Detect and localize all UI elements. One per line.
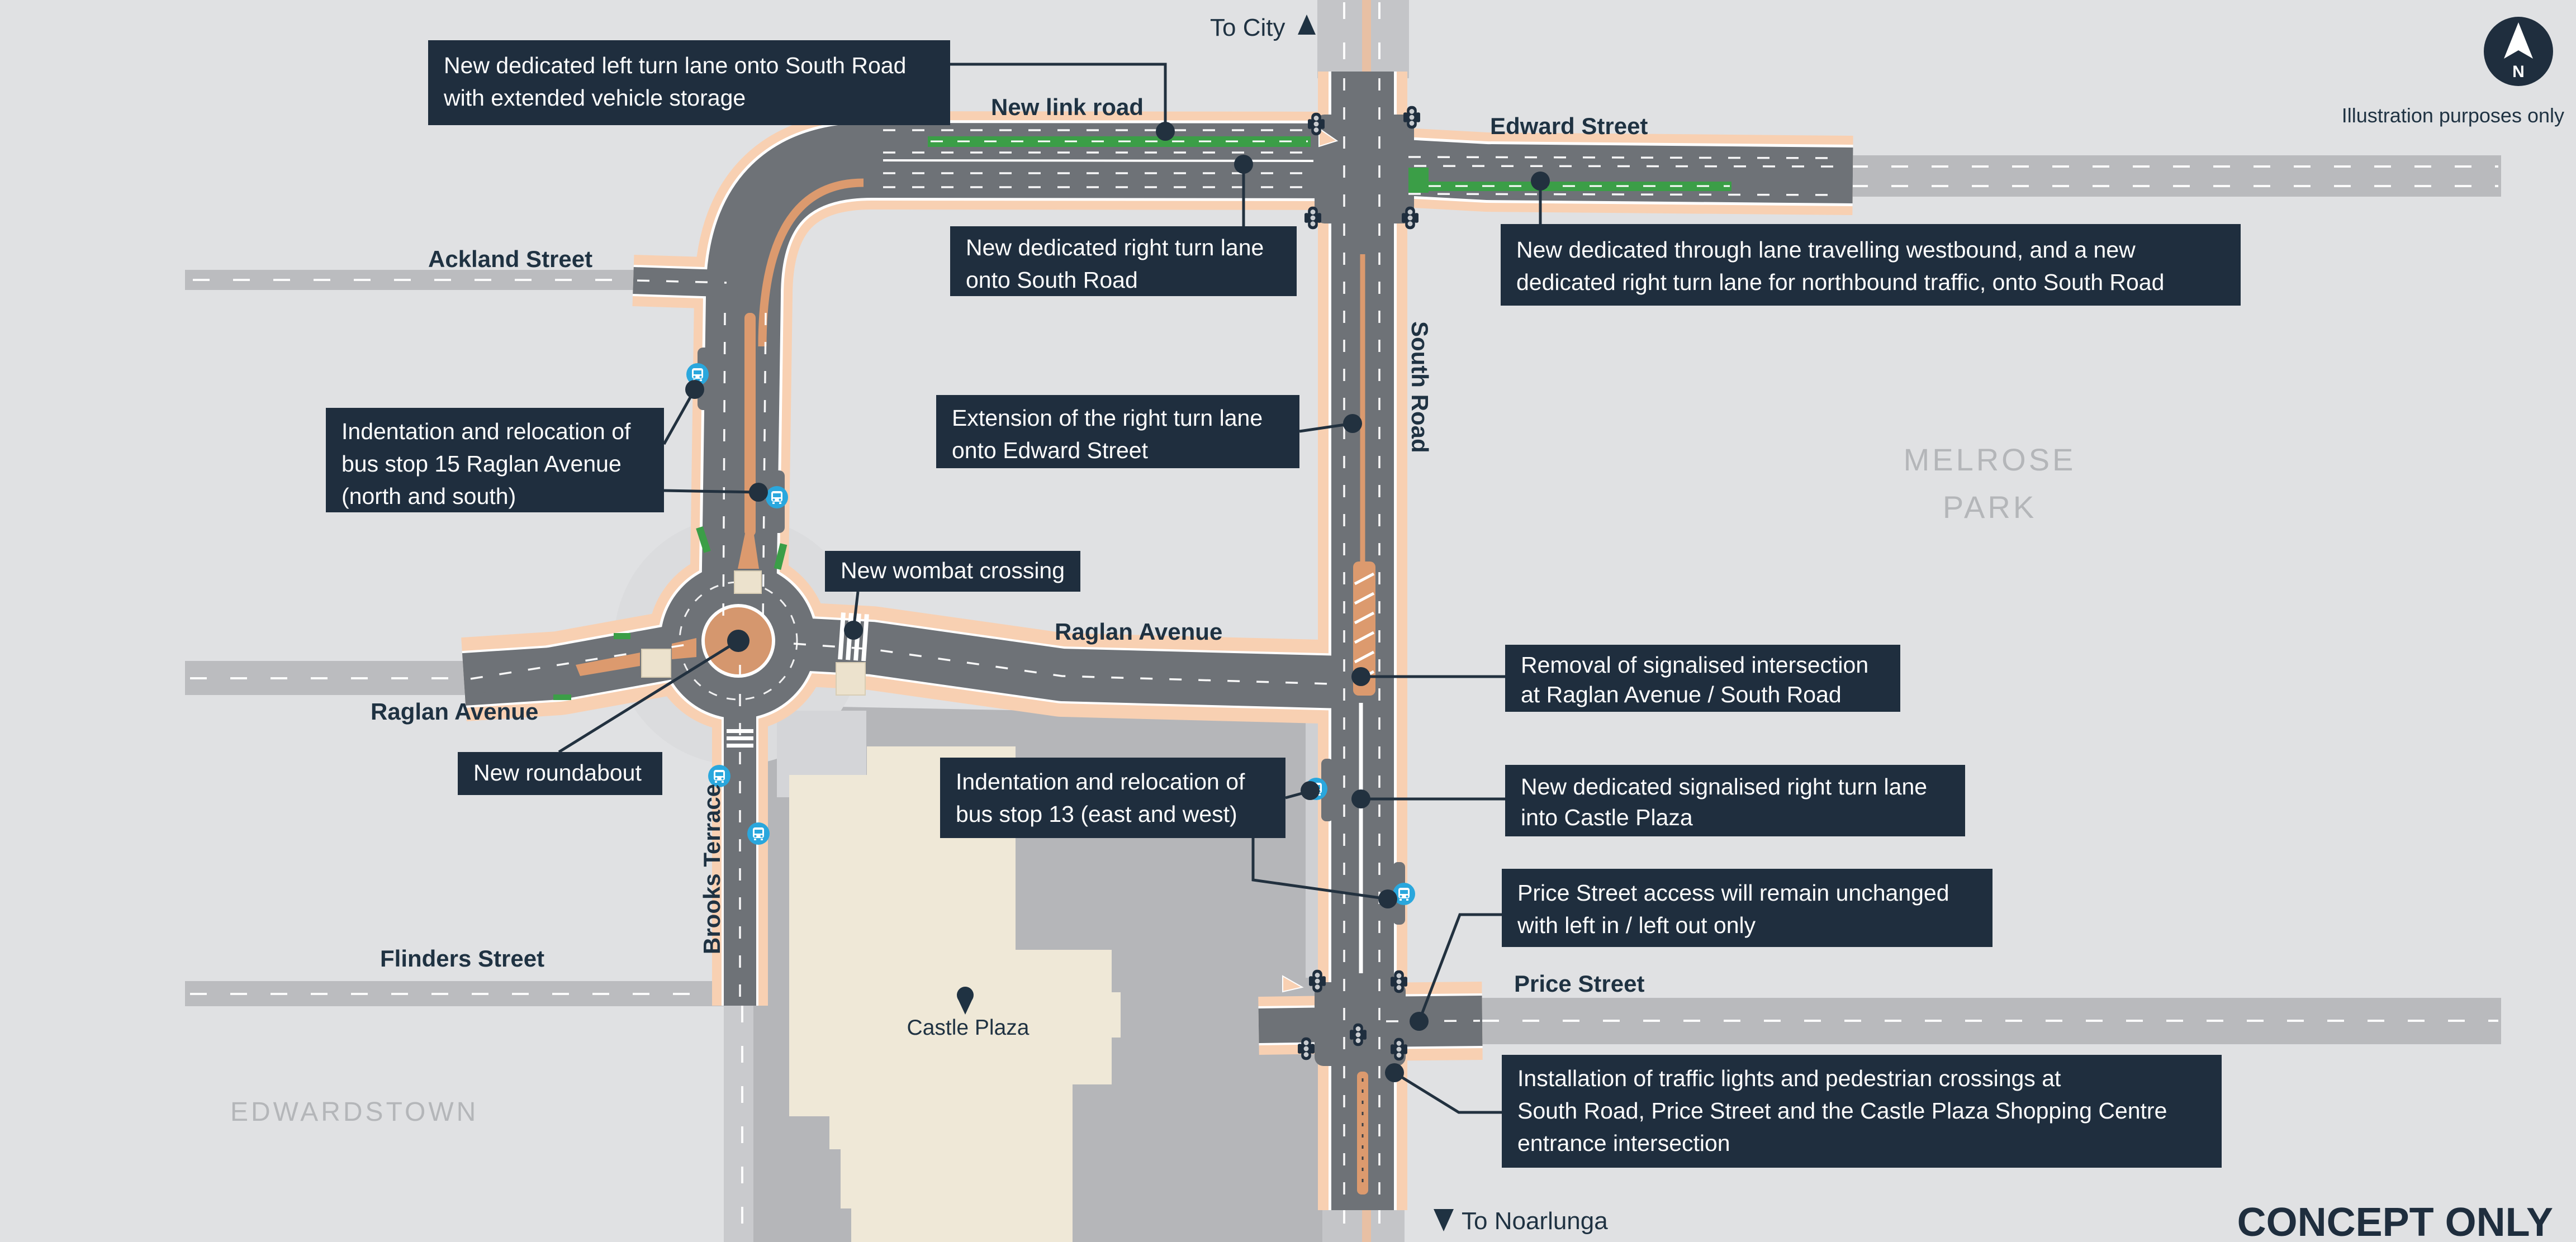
svg-text:bus stop 15 Raglan Avenue: bus stop 15 Raglan Avenue bbox=[341, 451, 622, 477]
svg-text:Indentation and relocation of: Indentation and relocation of bbox=[341, 418, 631, 444]
svg-text:New roundabout: New roundabout bbox=[473, 760, 642, 786]
svg-text:Raglan Avenue: Raglan Avenue bbox=[1055, 618, 1222, 645]
svg-text:onto Edward Street: onto Edward Street bbox=[952, 437, 1149, 463]
svg-text:New wombat crossing: New wombat crossing bbox=[841, 558, 1065, 583]
svg-text:Illustration purposes only: Illustration purposes only bbox=[2342, 104, 2564, 127]
svg-text:New dedicated left turn lane o: New dedicated left turn lane onto South … bbox=[444, 53, 906, 78]
svg-text:Castle Plaza: Castle Plaza bbox=[907, 1016, 1030, 1040]
svg-text:Extension of the right turn la: Extension of the right turn lane bbox=[952, 405, 1263, 431]
svg-text:New dedicated right turn lane: New dedicated right turn lane bbox=[966, 235, 1264, 260]
svg-text:Price Street: Price Street bbox=[1514, 970, 1644, 997]
svg-text:dedicated right turn lane for: dedicated right turn lane for northbound… bbox=[1516, 269, 2164, 295]
svg-text:To City: To City bbox=[1210, 14, 1285, 41]
svg-text:Indentation and relocation of: Indentation and relocation of bbox=[956, 769, 1245, 794]
svg-text:Installation of traffic lights: Installation of traffic lights and pedes… bbox=[1517, 1065, 2061, 1091]
svg-text:with extended vehicle storage: with extended vehicle storage bbox=[443, 85, 746, 111]
svg-text:Flinders Street: Flinders Street bbox=[380, 945, 544, 972]
svg-text:onto South Road: onto South Road bbox=[966, 267, 1138, 293]
svg-text:MELROSE: MELROSE bbox=[1904, 442, 2076, 477]
svg-text:New dedicated signalised right: New dedicated signalised right turn lane bbox=[1521, 774, 1927, 800]
svg-text:entrance intersection: entrance intersection bbox=[1517, 1130, 1730, 1156]
svg-text:Removal of signalised intersec: Removal of signalised intersection bbox=[1521, 652, 1868, 678]
svg-text:PARK: PARK bbox=[1943, 489, 2037, 525]
svg-text:Price Street access will remai: Price Street access will remain unchange… bbox=[1517, 880, 1949, 906]
svg-text:South Road, Price Street and t: South Road, Price Street and the Castle … bbox=[1517, 1098, 2167, 1124]
svg-text:To Noarlunga: To Noarlunga bbox=[1462, 1207, 1608, 1235]
svg-text:New dedicated through lane tra: New dedicated through lane travelling we… bbox=[1516, 237, 2136, 263]
svg-text:Edward Street: Edward Street bbox=[1490, 113, 1648, 139]
svg-text:EDWARDSTOWN: EDWARDSTOWN bbox=[230, 1097, 478, 1127]
svg-text:Raglan Avenue: Raglan Avenue bbox=[371, 698, 538, 725]
svg-text:with left in / left out only: with left in / left out only bbox=[1517, 912, 1756, 938]
svg-text:at Raglan Avenue / South Road: at Raglan Avenue / South Road bbox=[1521, 682, 1842, 707]
svg-text:New link road: New link road bbox=[991, 94, 1144, 120]
svg-text:(north and south): (north and south) bbox=[341, 483, 516, 509]
svg-text:N: N bbox=[2512, 63, 2525, 81]
svg-text:Ackland Street: Ackland Street bbox=[428, 246, 592, 272]
svg-text:South Road: South Road bbox=[1407, 321, 1433, 453]
svg-text:Brooks Terrace: Brooks Terrace bbox=[699, 784, 725, 954]
svg-text:into Castle Plaza: into Castle Plaza bbox=[1521, 805, 1693, 830]
svg-text:CONCEPT ONLY: CONCEPT ONLY bbox=[2237, 1200, 2553, 1242]
svg-text:bus stop 13 (east and west): bus stop 13 (east and west) bbox=[956, 801, 1237, 827]
